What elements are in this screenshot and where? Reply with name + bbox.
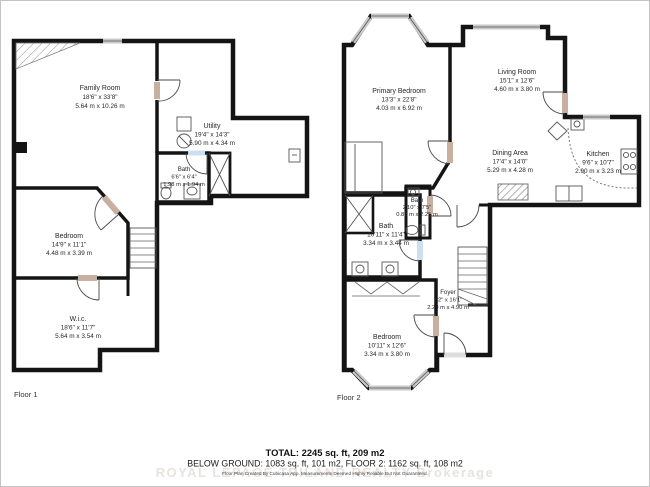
room-dim-imperial: 2'10" x 7'5"	[403, 205, 432, 211]
room-dim-metric: 4.48 m x 3.39 m	[46, 250, 92, 257]
room-label: Utility	[204, 123, 221, 130]
room-dim-imperial: 14'9" x 11'1"	[52, 242, 87, 249]
room-dim-imperial: 18'6" x 33'8"	[82, 94, 117, 101]
room-dim-imperial: 13'3" x 22'8"	[381, 97, 416, 104]
room-label: Dining Area	[492, 150, 528, 157]
room-label: Family Room	[80, 85, 121, 92]
stairs-icon	[130, 228, 156, 268]
footer-total-area: TOTAL: 2245 sq. ft, 209 m2	[266, 447, 385, 458]
room-label: Living Room	[498, 69, 537, 76]
room-label: Bath	[379, 223, 393, 230]
footer-area-breakdown: BELOW GROUND: 1083 sq. ft, 101 m2, FLOOR…	[187, 459, 463, 469]
room-dim-imperial: 6'6" x 6'4"	[171, 175, 196, 181]
room-dim-metric: 5.90 m x 4.34 m	[189, 140, 235, 147]
footer-disclaimer: Floor Plan Created By Cubicasa App. Meas…	[222, 471, 428, 476]
room-label: Primary Bedroom	[372, 88, 426, 95]
room-dim-metric: 4.03 m x 6.92 m	[376, 105, 422, 112]
room-dim-metric: 5.64 m x 3.54 m	[55, 333, 101, 340]
room-dim-metric: 0.86 m x 2.25 m	[396, 212, 438, 218]
room-dim-imperial: 9'6" x 10'7"	[582, 160, 614, 167]
room-dim-metric: 1.98 m x 1.94 m	[163, 182, 205, 188]
room-label: Kitchen	[587, 151, 610, 158]
label-family-room: Family Room 18'6" x 33'8" 5.64 m x 10.26…	[75, 85, 124, 110]
room-label: W.i.c.	[70, 316, 87, 323]
room-label: Bath	[411, 197, 424, 204]
page-border	[1, 1, 650, 487]
room-label: Foyer	[440, 289, 456, 296]
room-dim-imperial: 15'1" x 12'6"	[499, 78, 534, 85]
room-dim-metric: 5.29 m x 4.28 m	[487, 167, 533, 174]
floor-plan-canvas: Family Room 18'6" x 33'8" 5.64 m x 10.26…	[0, 0, 650, 487]
room-label: Bedroom	[373, 334, 401, 341]
room-dim-metric: 3.34 m x 3.44 m	[363, 240, 409, 247]
room-label: Bath	[178, 166, 191, 173]
label-living-room: Living Room 15'1" x 12'6" 4.60 m x 3.80 …	[494, 69, 540, 93]
room-dim-imperial: 17'4" x 14'0"	[492, 159, 527, 166]
floor-plan-page: Family Room 18'6" x 33'8" 5.64 m x 10.26…	[0, 0, 650, 487]
room-dim-metric: 3.34 m x 3.80 m	[364, 351, 410, 358]
sideboard-icon	[498, 184, 528, 200]
room-dim-metric: 4.60 m x 3.80 m	[494, 86, 540, 93]
floor-2-label: Floor 2	[337, 393, 361, 402]
room-dim-metric: 2.90 m x 3.23 m	[575, 168, 621, 175]
room-dim-imperial: 19'4" x 14'3"	[194, 132, 229, 139]
room-dim-imperial: 10'11" x 12'6"	[368, 343, 406, 350]
room-dim-metric: 5.64 m x 10.26 m	[75, 103, 124, 110]
fireplace-icon	[12, 142, 27, 153]
label-dining-area: Dining Area 17'4" x 14'0" 5.29 m x 4.28 …	[487, 150, 533, 174]
room-label: Bedroom	[55, 233, 83, 240]
room-dim-imperial: 10'11" x 11'4"	[367, 232, 405, 239]
room-dim-metric: 2.20 m x 4.90 m	[427, 305, 469, 311]
room-dim-imperial: 18'6" x 11'7"	[61, 325, 96, 332]
floor-1-label: Floor 1	[14, 390, 38, 399]
room-dim-imperial: 7'2" x 16'1"	[434, 298, 463, 304]
